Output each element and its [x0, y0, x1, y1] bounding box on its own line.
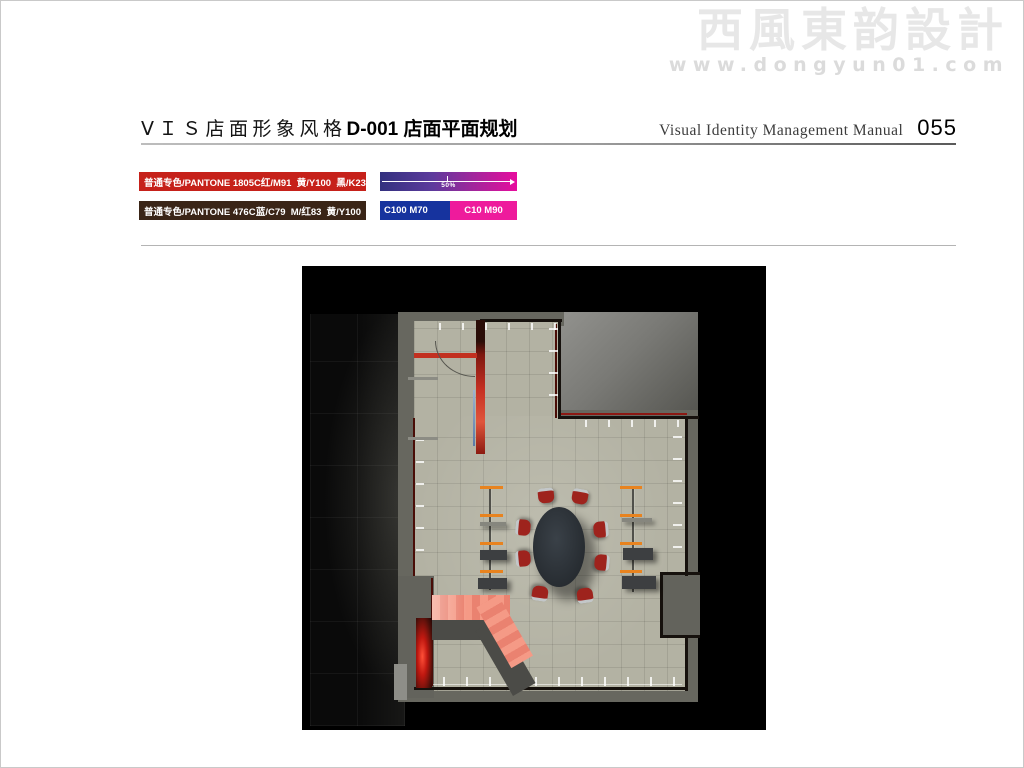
rack-shelf — [480, 550, 507, 560]
wall-red-trim — [561, 413, 687, 415]
spotlight-ticks — [422, 677, 678, 686]
spot-color-label: 普通专色/PANTONE 1805C — [144, 175, 261, 189]
duotone-right-swatch: C10 M90 — [450, 201, 517, 220]
rack-bar-orange — [620, 542, 642, 545]
wall-line — [685, 636, 688, 691]
exterior-tile-grid — [310, 314, 405, 726]
spot-color-bar-red: 普通专色/PANTONE 1805C 红/M91 黄/Y100 黑/K23 — [139, 172, 366, 191]
rack-shelf — [623, 548, 653, 560]
display-table-oval — [533, 507, 585, 587]
glass-partition — [473, 390, 475, 446]
wall-line — [480, 319, 562, 322]
spot-color-bar-brown: 普通专色/PANTONE 476C 蓝/C79 M/红83 黄/Y100 — [139, 201, 366, 220]
rack-post — [489, 486, 491, 590]
spotlight-ticks — [549, 326, 558, 416]
spot-color-label: 普通专色/PANTONE 476C — [144, 204, 256, 218]
wall-notch-right — [660, 572, 700, 638]
wall-shelf — [408, 437, 438, 440]
spotlight-ticks — [418, 323, 558, 330]
display-rack-right — [618, 484, 656, 596]
spotlight-ticks — [673, 428, 682, 568]
duotone-left-swatch: C100 M70 — [380, 201, 450, 220]
rack-bar-orange — [620, 486, 642, 489]
header-right: Visual Identity Management Manual 055 — [659, 115, 957, 141]
chair — [537, 487, 554, 504]
spotlight-ticks — [416, 431, 424, 571]
rack-bar-orange — [480, 514, 503, 517]
salesfloor-upper — [414, 321, 559, 421]
chair — [594, 554, 610, 571]
wall-line — [685, 416, 688, 576]
gradient-midpoint-label: 50% — [380, 182, 517, 189]
rack-bar-orange — [480, 542, 503, 545]
watermark: 西風東韵設計 www.dongyun01.com — [669, 7, 1009, 75]
rack-shelf — [478, 578, 507, 589]
rack-shelf — [480, 522, 506, 526]
wall-line — [559, 416, 699, 419]
manual-page: 西風東韵設計 www.dongyun01.com ⅤＩＳ店面形象风格 D-001… — [0, 0, 1024, 768]
chair — [593, 521, 609, 538]
display-rack-left — [478, 484, 506, 596]
divider-rule — [141, 245, 956, 246]
spotlight-ticks — [564, 420, 682, 427]
company-logo-text: 西風東韵設計 — [669, 7, 1009, 53]
rack-bar-orange — [620, 570, 642, 573]
spot-color-values: 蓝/C79 M/红83 黄/Y100 — [256, 204, 361, 218]
feature-wall-red — [476, 320, 485, 454]
exterior-notch-panel — [560, 312, 698, 418]
chair — [531, 585, 549, 602]
manual-title: Visual Identity Management Manual — [659, 122, 903, 140]
rack-bar-orange — [480, 570, 503, 573]
company-url: www.dongyun01.com — [669, 56, 1009, 75]
exterior-column — [394, 664, 407, 700]
rack-bar-orange — [480, 486, 503, 489]
header-rule — [141, 143, 956, 145]
entry-red-glow — [416, 618, 432, 688]
page-number: 055 — [917, 115, 957, 141]
rack-bar-orange — [620, 514, 642, 517]
section-title: ⅤＩＳ店面形象风格 — [141, 114, 347, 141]
chair — [576, 587, 594, 604]
wall-line — [414, 687, 688, 690]
chair — [515, 550, 531, 567]
chair — [515, 519, 531, 536]
wall-line — [558, 319, 561, 419]
rack-shelf — [622, 518, 652, 522]
wall-shelf — [408, 377, 438, 380]
duotone-bar: C100 M70 C10 M90 — [380, 201, 517, 220]
page-title: D-001 店面平面规划 — [347, 114, 518, 141]
gradient-scale-bar: 50% — [380, 172, 517, 191]
floorplan-canvas — [302, 266, 766, 730]
page-header: ⅤＩＳ店面形象风格 D-001 店面平面规划 Visual Identity M… — [141, 114, 957, 141]
rack-shelf — [622, 576, 656, 589]
wall-red-trim — [413, 418, 415, 576]
spot-color-values: 红/M91 黄/Y100 黑/K23 — [261, 175, 366, 189]
